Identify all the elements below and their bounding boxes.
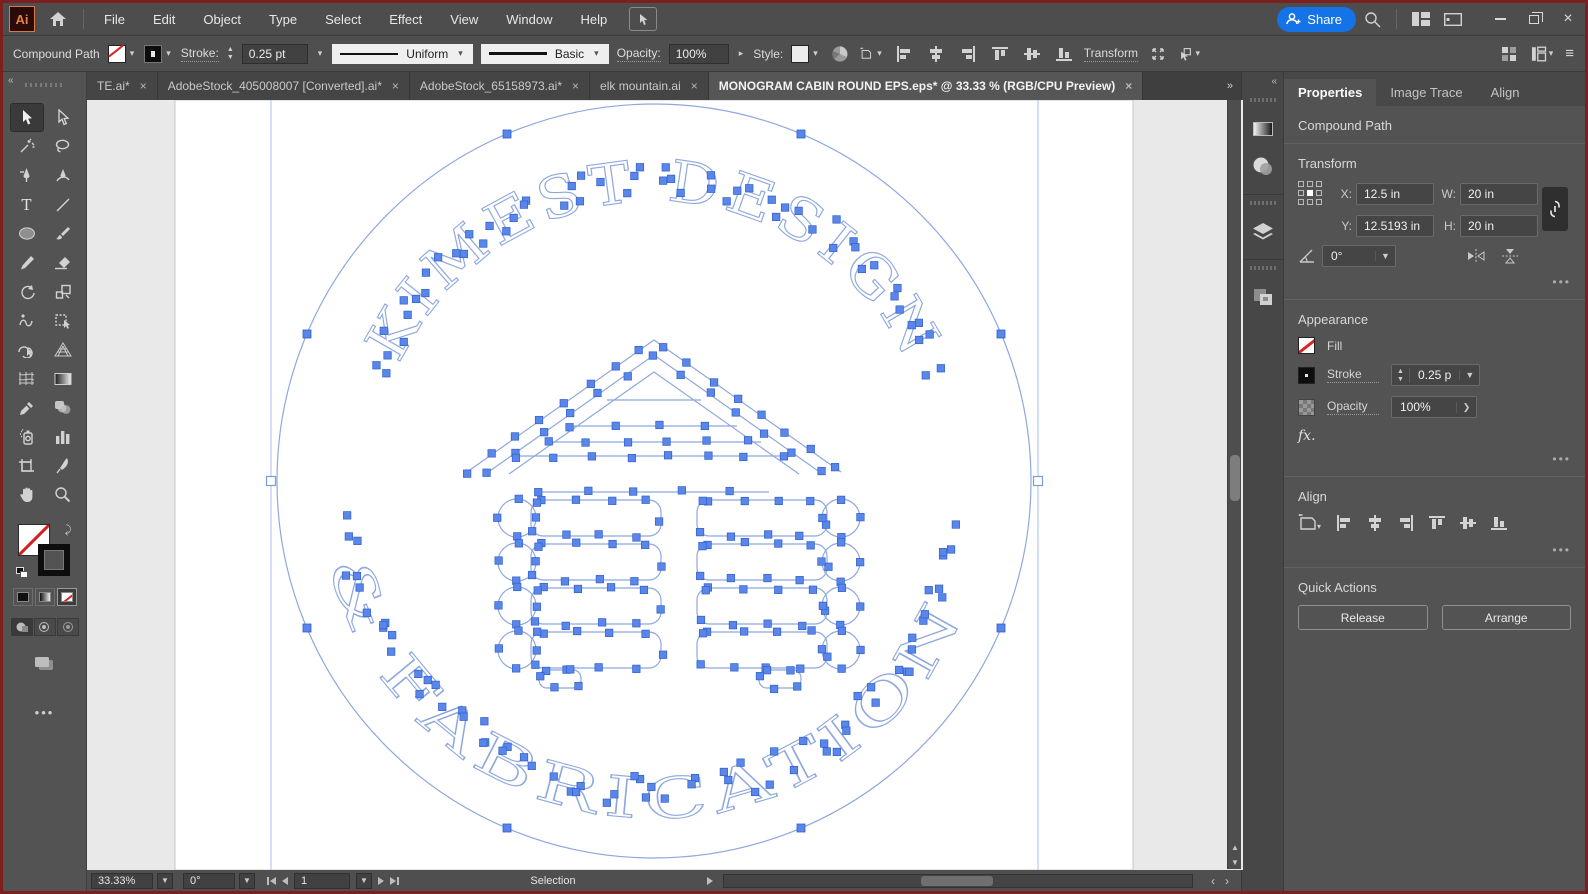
- panel-menu-icon[interactable]: ≡: [1565, 45, 1575, 62]
- anchor-point[interactable]: [707, 185, 715, 193]
- anchor-point[interactable]: [629, 488, 637, 496]
- anchor-point[interactable]: [515, 627, 523, 635]
- scale-tool[interactable]: [47, 278, 79, 305]
- anchor-point[interactable]: [631, 772, 639, 780]
- anchor-point[interactable]: [664, 452, 672, 460]
- tab-image-trace[interactable]: Image Trace: [1376, 79, 1476, 106]
- anchor-point[interactable]: [908, 646, 916, 654]
- anchor-point[interactable]: [740, 453, 748, 461]
- anchor-point[interactable]: [532, 558, 540, 566]
- anchor-point[interactable]: [612, 422, 620, 430]
- panel-grip[interactable]: [25, 83, 65, 87]
- anchor-point[interactable]: [947, 546, 955, 554]
- zoom-dropdown-icon[interactable]: ▼: [157, 873, 173, 889]
- anchor-point[interactable]: [415, 670, 423, 678]
- anchor-point[interactable]: [380, 621, 388, 629]
- anchor-point[interactable]: [363, 609, 371, 617]
- anchor-point[interactable]: [655, 518, 663, 526]
- anchor-point[interactable]: [605, 629, 613, 637]
- anchor-point[interactable]: [515, 495, 523, 503]
- menu-file[interactable]: File: [92, 3, 137, 36]
- stroke-link[interactable]: Stroke:: [181, 46, 219, 62]
- anchor-point[interactable]: [460, 713, 468, 721]
- flip-vertical-icon[interactable]: [1500, 248, 1520, 264]
- anchor-point[interactable]: [635, 346, 643, 354]
- anchor-point[interactable]: [642, 496, 650, 504]
- slice-tool[interactable]: [47, 452, 79, 479]
- anchor-point[interactable]: [515, 540, 523, 548]
- app-logo-icon[interactable]: Ai: [9, 6, 35, 32]
- variable-width-dropdown[interactable]: Uniform ▾: [332, 44, 473, 64]
- opacity-control[interactable]: 100% ❯: [1391, 396, 1477, 418]
- fx-button[interactable]: fx.: [1298, 428, 1571, 444]
- anchor-point[interactable]: [857, 646, 865, 654]
- anchor-point[interactable]: [535, 488, 543, 496]
- anchor-point[interactable]: [824, 653, 832, 661]
- mesh-tool[interactable]: [11, 365, 43, 392]
- anchor-point[interactable]: [480, 739, 488, 747]
- fill-swatch[interactable]: [1298, 337, 1315, 354]
- align-center-horizontal-icon[interactable]: [924, 43, 948, 65]
- anchor-point[interactable]: [532, 661, 540, 669]
- anchor-point[interactable]: [561, 202, 569, 210]
- anchor-point[interactable]: [533, 628, 541, 636]
- rotation-field[interactable]: 0°: [183, 873, 235, 889]
- anchor-point[interactable]: [494, 514, 502, 522]
- change-screen-mode-icon[interactable]: [33, 654, 57, 679]
- scroll-up-icon[interactable]: ▲: [1231, 843, 1239, 852]
- anchor-point[interactable]: [345, 533, 353, 541]
- anchor-point[interactable]: [763, 666, 771, 674]
- zoom-tool[interactable]: [47, 481, 79, 508]
- anchor-point[interactable]: [819, 514, 827, 522]
- close-button[interactable]: ×: [1551, 5, 1585, 33]
- anchor-point[interactable]: [729, 621, 737, 629]
- anchor-point[interactable]: [512, 665, 520, 673]
- anchor-point[interactable]: [603, 799, 611, 807]
- anchor-point[interactable]: [723, 198, 731, 206]
- anchor-point[interactable]: [895, 666, 903, 674]
- anchor-point[interactable]: [697, 661, 705, 669]
- flip-horizontal-icon[interactable]: [1466, 248, 1486, 264]
- gradient-panel-icon[interactable]: [1248, 114, 1278, 144]
- align-right-icon[interactable]: [956, 43, 980, 65]
- anchor-point[interactable]: [611, 791, 619, 799]
- anchor-point[interactable]: [631, 578, 639, 586]
- anchor-point[interactable]: [688, 781, 696, 789]
- y-field[interactable]: 12.5193 in: [1356, 215, 1434, 237]
- more-options-icon[interactable]: •••: [1298, 275, 1571, 289]
- anchor-point[interactable]: [480, 240, 488, 248]
- anchor-point[interactable]: [657, 606, 665, 614]
- anchor-point[interactable]: [807, 497, 815, 505]
- anchor-point[interactable]: [495, 557, 503, 565]
- menu-type[interactable]: Type: [257, 3, 309, 36]
- anchor-point[interactable]: [710, 379, 718, 387]
- anchor-point[interactable]: [773, 628, 781, 636]
- anchor-point[interactable]: [528, 571, 536, 579]
- shape-builder-tool[interactable]: [11, 336, 43, 363]
- anchor-point[interactable]: [909, 634, 917, 642]
- anchor-point[interactable]: [648, 783, 656, 791]
- artboard-dropdown-icon[interactable]: ▼: [356, 873, 372, 889]
- anchor-point[interactable]: [384, 352, 392, 360]
- close-tab-icon[interactable]: ×: [392, 79, 399, 93]
- panel-grip[interactable]: [1250, 266, 1276, 270]
- anchor-point[interactable]: [343, 512, 351, 519]
- anchor-point[interactable]: [699, 630, 707, 638]
- pen-tool[interactable]: [11, 162, 43, 189]
- anchor-point[interactable]: [921, 611, 929, 619]
- minimize-button[interactable]: [1483, 5, 1517, 33]
- anchor-point[interactable]: [534, 587, 542, 595]
- anchor-point[interactable]: [808, 627, 816, 635]
- menu-select[interactable]: Select: [313, 3, 373, 36]
- anchor-point[interactable]: [596, 575, 604, 583]
- paintbrush-tool[interactable]: [47, 220, 79, 247]
- anchor-point[interactable]: [640, 586, 648, 594]
- previous-artboard-icon[interactable]: [282, 877, 288, 885]
- direct-selection-tool[interactable]: [47, 104, 79, 131]
- anchor-point[interactable]: [624, 373, 632, 381]
- anchor-point[interactable]: [531, 618, 539, 626]
- scroll-right-icon[interactable]: ›: [1225, 874, 1229, 888]
- magic-wand-tool[interactable]: [11, 133, 43, 160]
- anchor-point[interactable]: [633, 534, 641, 542]
- anchor-point[interactable]: [488, 450, 496, 458]
- anchor-point[interactable]: [758, 411, 766, 419]
- anchor-point[interactable]: [658, 563, 666, 571]
- align-center-vertical-icon[interactable]: [1020, 43, 1044, 65]
- color-button[interactable]: [13, 588, 33, 606]
- anchor-point[interactable]: [764, 531, 772, 539]
- anchor-point[interactable]: [744, 437, 752, 445]
- anchor-point[interactable]: [825, 563, 833, 571]
- anchor-point[interactable]: [790, 766, 798, 774]
- shaper-tool[interactable]: [11, 307, 43, 334]
- color-panel-icon[interactable]: [1248, 152, 1278, 182]
- anchor-point[interactable]: [740, 628, 748, 636]
- artboard-icon[interactable]: [1437, 3, 1469, 36]
- anchor-point[interactable]: [533, 647, 541, 655]
- doc-tab[interactable]: AdobeStock_65158973.ai* ×: [410, 72, 590, 100]
- anchor-point[interactable]: [512, 454, 520, 462]
- anchor-point[interactable]: [503, 228, 511, 236]
- stroke-weight-control[interactable]: ▲▼ 0.25 p ▼: [1391, 364, 1480, 386]
- panel-grip[interactable]: [1250, 201, 1276, 205]
- anchor-point[interactable]: [412, 295, 420, 303]
- anchor-point[interactable]: [499, 747, 507, 755]
- fill-stroke-indicator[interactable]: ⤸: [18, 524, 72, 576]
- anchor-point[interactable]: [594, 389, 602, 397]
- anchor-point[interactable]: [633, 665, 641, 673]
- restore-button[interactable]: [1517, 5, 1551, 33]
- doc-tab[interactable]: AdobeStock_405008007 [Converted].ai* ×: [158, 72, 410, 100]
- rotate-angle-select[interactable]: 0° ▼: [1322, 245, 1396, 267]
- anchor-point[interactable]: [573, 627, 581, 635]
- anchor-point[interactable]: [780, 453, 788, 461]
- anchor-point[interactable]: [725, 776, 733, 784]
- anchor-point[interactable]: [837, 496, 845, 504]
- anchor-point[interactable]: [588, 453, 596, 461]
- anchor-point[interactable]: [628, 454, 636, 462]
- opacity-link[interactable]: Opacity: [1327, 399, 1379, 415]
- anchor-point[interactable]: [422, 289, 430, 297]
- menu-window[interactable]: Window: [494, 3, 564, 36]
- anchor-point[interactable]: [387, 648, 395, 656]
- horizontal-scrollbar[interactable]: [723, 874, 1193, 888]
- anchor-point[interactable]: [400, 297, 408, 305]
- horizontal-scroll-thumb[interactable]: [921, 876, 993, 886]
- touch-workspace-button[interactable]: [629, 7, 657, 31]
- anchor-point[interactable]: [775, 540, 783, 548]
- anchor-point[interactable]: [781, 429, 789, 437]
- constrain-proportions-icon[interactable]: [1542, 187, 1568, 231]
- anchor-point[interactable]: [659, 344, 667, 352]
- anchor-point[interactable]: [495, 645, 503, 653]
- anchor-point[interactable]: [741, 497, 749, 505]
- stroke-link[interactable]: Stroke: [1327, 367, 1379, 383]
- anchor-point[interactable]: [566, 409, 574, 417]
- anchor-point[interactable]: [854, 692, 862, 700]
- menu-view[interactable]: View: [438, 3, 490, 36]
- anchor-point[interactable]: [838, 584, 846, 592]
- anchor-point[interactable]: [872, 699, 880, 707]
- stroke-weight-stepper[interactable]: ▲▼: [227, 46, 234, 61]
- doc-tab[interactable]: elk mountain.ai ×: [590, 72, 709, 100]
- anchor-point[interactable]: [731, 664, 739, 672]
- gradient-tool[interactable]: [47, 365, 79, 392]
- anchor-point[interactable]: [818, 646, 826, 654]
- anchor-point[interactable]: [772, 213, 780, 221]
- anchor-point[interactable]: [575, 682, 583, 690]
- vertical-scrollbar[interactable]: ▲ ▼: [1227, 100, 1241, 869]
- anchor-point[interactable]: [659, 177, 667, 185]
- anchor-point[interactable]: [424, 676, 432, 684]
- w-field[interactable]: 20 in: [1460, 183, 1538, 205]
- arrange-button[interactable]: Arrange: [1442, 605, 1572, 630]
- anchor-point[interactable]: [896, 306, 904, 314]
- anchor-point[interactable]: [702, 587, 710, 595]
- anchor-point[interactable]: [734, 187, 742, 195]
- anchor-point[interactable]: [770, 685, 778, 693]
- anchor-point[interactable]: [422, 269, 430, 277]
- anchor-point[interactable]: [582, 439, 590, 447]
- anchor-point[interactable]: [514, 533, 522, 541]
- anchor-point[interactable]: [707, 172, 715, 180]
- more-options-icon[interactable]: •••: [1298, 543, 1571, 557]
- doc-tab[interactable]: TE.ai* ×: [87, 72, 158, 100]
- brush-dropdown[interactable]: Basic ▾: [481, 44, 609, 64]
- share-button[interactable]: Share: [1277, 7, 1356, 32]
- style-control[interactable]: ▾: [791, 45, 820, 63]
- anchor-point[interactable]: [937, 365, 945, 373]
- eyedropper-tool[interactable]: [11, 394, 43, 421]
- scroll-left-icon[interactable]: ‹: [1211, 874, 1215, 888]
- stroke-swatch[interactable]: [1298, 367, 1315, 384]
- anchor-point[interactable]: [573, 539, 581, 547]
- anchor-point[interactable]: [453, 250, 461, 258]
- anchor-point[interactable]: [563, 531, 571, 539]
- anchor-point[interactable]: [766, 781, 774, 789]
- anchor-point[interactable]: [915, 319, 923, 327]
- home-button[interactable]: [41, 3, 75, 36]
- anchor-point[interactable]: [796, 576, 804, 584]
- opacity-link[interactable]: Opacity:: [617, 46, 661, 62]
- anchor-point[interactable]: [734, 395, 742, 403]
- anchor-point[interactable]: [819, 602, 827, 610]
- anchor-point[interactable]: [799, 622, 807, 630]
- anchor-point[interactable]: [677, 189, 685, 197]
- stroke-indicator[interactable]: [38, 544, 70, 576]
- anchor-point[interactable]: [795, 207, 803, 215]
- anchor-point[interactable]: [683, 359, 691, 367]
- none-button[interactable]: [57, 588, 77, 606]
- menu-edit[interactable]: Edit: [141, 3, 187, 36]
- layout-icon[interactable]: [1405, 3, 1437, 36]
- anchor-point[interactable]: [732, 409, 740, 417]
- collapse-tools-icon[interactable]: «: [8, 75, 14, 86]
- anchor-point[interactable]: [726, 487, 734, 495]
- anchor-point[interactable]: [740, 586, 748, 594]
- anchor-point[interactable]: [533, 603, 541, 611]
- anchor-point[interactable]: [756, 672, 764, 680]
- anchor-point[interactable]: [624, 439, 632, 447]
- opacity-field[interactable]: 100%: [669, 44, 729, 64]
- anchor-point[interactable]: [908, 321, 916, 329]
- menu-object[interactable]: Object: [191, 3, 253, 36]
- isolate-selection-icon[interactable]: ▾: [1178, 43, 1202, 65]
- menu-help[interactable]: Help: [568, 3, 619, 36]
- anchor-point[interactable]: [598, 619, 606, 627]
- arrange-documents-icon[interactable]: [1497, 43, 1521, 65]
- anchor-point[interactable]: [857, 513, 865, 521]
- anchor-point[interactable]: [463, 470, 471, 478]
- anchor-point[interactable]: [800, 737, 808, 745]
- anchor-point[interactable]: [535, 543, 543, 551]
- align-center-horizontal-icon[interactable]: [1366, 514, 1384, 535]
- ellipse-tool[interactable]: [11, 220, 43, 247]
- more-options-icon[interactable]: •••: [1298, 452, 1571, 466]
- anchor-point[interactable]: [533, 499, 541, 507]
- anchor-point[interactable]: [595, 531, 603, 539]
- default-fill-stroke-icon[interactable]: [16, 567, 29, 578]
- anchor-point[interactable]: [707, 389, 715, 397]
- eraser-tool[interactable]: [47, 249, 79, 276]
- rotation-dropdown-icon[interactable]: ▼: [239, 873, 255, 889]
- anchor-point[interactable]: [852, 244, 860, 252]
- anchor-point[interactable]: [925, 586, 933, 594]
- anchor-point[interactable]: [831, 463, 839, 471]
- align-to-selection-icon[interactable]: ▾: [1298, 514, 1322, 535]
- type-tool[interactable]: T: [11, 191, 43, 218]
- anchor-point[interactable]: [520, 754, 528, 762]
- anchor-point[interactable]: [597, 178, 605, 186]
- anchor-point[interactable]: [794, 683, 802, 691]
- h-field[interactable]: 20 in: [1460, 215, 1538, 237]
- anchor-point[interactable]: [667, 175, 675, 183]
- anchor-point[interactable]: [935, 585, 943, 593]
- transform-link[interactable]: Transform: [1084, 46, 1138, 62]
- anchor-point[interactable]: [481, 718, 489, 726]
- anchor-point[interactable]: [514, 583, 522, 591]
- anchor-point[interactable]: [751, 788, 759, 796]
- anchor-point[interactable]: [587, 380, 595, 388]
- vertical-scroll-thumb[interactable]: [1230, 455, 1240, 501]
- panel-grip[interactable]: [1250, 98, 1276, 102]
- anchor-point[interactable]: [663, 438, 671, 446]
- anchor-point[interactable]: [697, 616, 705, 624]
- anchor-point[interactable]: [915, 336, 923, 344]
- anchor-point[interactable]: [699, 542, 707, 550]
- anchor-point[interactable]: [952, 521, 960, 529]
- anchor-point[interactable]: [561, 578, 569, 586]
- anchor-point[interactable]: [699, 497, 707, 505]
- anchor-point[interactable]: [567, 666, 575, 674]
- draw-normal-mode[interactable]: [11, 618, 33, 636]
- anchor-point[interactable]: [383, 370, 391, 378]
- anchor-point[interactable]: [550, 773, 558, 781]
- anchor-point[interactable]: [856, 558, 864, 566]
- align-center-vertical-icon[interactable]: [1459, 514, 1477, 535]
- anchor-point[interactable]: [830, 244, 838, 252]
- anchor-point[interactable]: [609, 540, 617, 548]
- anchor-point[interactable]: [511, 433, 519, 441]
- anchor-point[interactable]: [577, 172, 585, 180]
- anchor-point[interactable]: [922, 372, 930, 380]
- rotate-tool[interactable]: [11, 278, 43, 305]
- align-top-icon[interactable]: [988, 43, 1012, 65]
- curvature-tool[interactable]: [47, 162, 79, 189]
- anchor-point[interactable]: [768, 196, 776, 204]
- anchor-point[interactable]: [894, 284, 902, 292]
- anchor-point[interactable]: [649, 352, 657, 360]
- close-tab-icon[interactable]: ×: [572, 79, 579, 93]
- anchor-point[interactable]: [656, 421, 664, 429]
- reference-point-locator[interactable]: [1298, 181, 1324, 207]
- canvas[interactable]: KIMEST DESIGN & FABRICATION: [87, 100, 1241, 869]
- anchor-point[interactable]: [486, 222, 494, 230]
- align-left-icon[interactable]: [1335, 514, 1353, 535]
- anchor-point[interactable]: [510, 214, 518, 222]
- anchor-point[interactable]: [520, 201, 528, 209]
- anchor-point[interactable]: [633, 620, 641, 628]
- anchor-point[interactable]: [641, 541, 649, 549]
- artboards-panel-icon[interactable]: [1248, 282, 1278, 312]
- anchor-point[interactable]: [858, 265, 866, 273]
- anchor-point[interactable]: [775, 586, 783, 594]
- symbol-sprayer-tool[interactable]: [11, 423, 43, 450]
- anchor-point[interactable]: [837, 539, 845, 547]
- anchor-point[interactable]: [720, 768, 728, 776]
- stroke-weight-field[interactable]: 0.25 pt: [242, 44, 308, 64]
- anchor-point[interactable]: [356, 584, 364, 592]
- anchor-point[interactable]: [820, 740, 828, 748]
- anchor-point[interactable]: [636, 164, 644, 172]
- anchor-point[interactable]: [662, 164, 670, 172]
- anchor-point[interactable]: [891, 293, 899, 301]
- anchor-point[interactable]: [678, 487, 686, 495]
- recolor-artwork-icon[interactable]: [828, 43, 852, 65]
- anchor-point[interactable]: [434, 254, 442, 262]
- anchor-point[interactable]: [483, 469, 491, 477]
- anchor-point[interactable]: [701, 422, 709, 430]
- doc-tab-active[interactable]: MONOGRAM CABIN ROUND EPS.eps* @ 33.33 % …: [709, 72, 1143, 100]
- anchor-point[interactable]: [595, 664, 603, 672]
- anchor-point[interactable]: [388, 631, 396, 639]
- anchor-point[interactable]: [939, 548, 947, 556]
- anchor-point[interactable]: [607, 584, 615, 592]
